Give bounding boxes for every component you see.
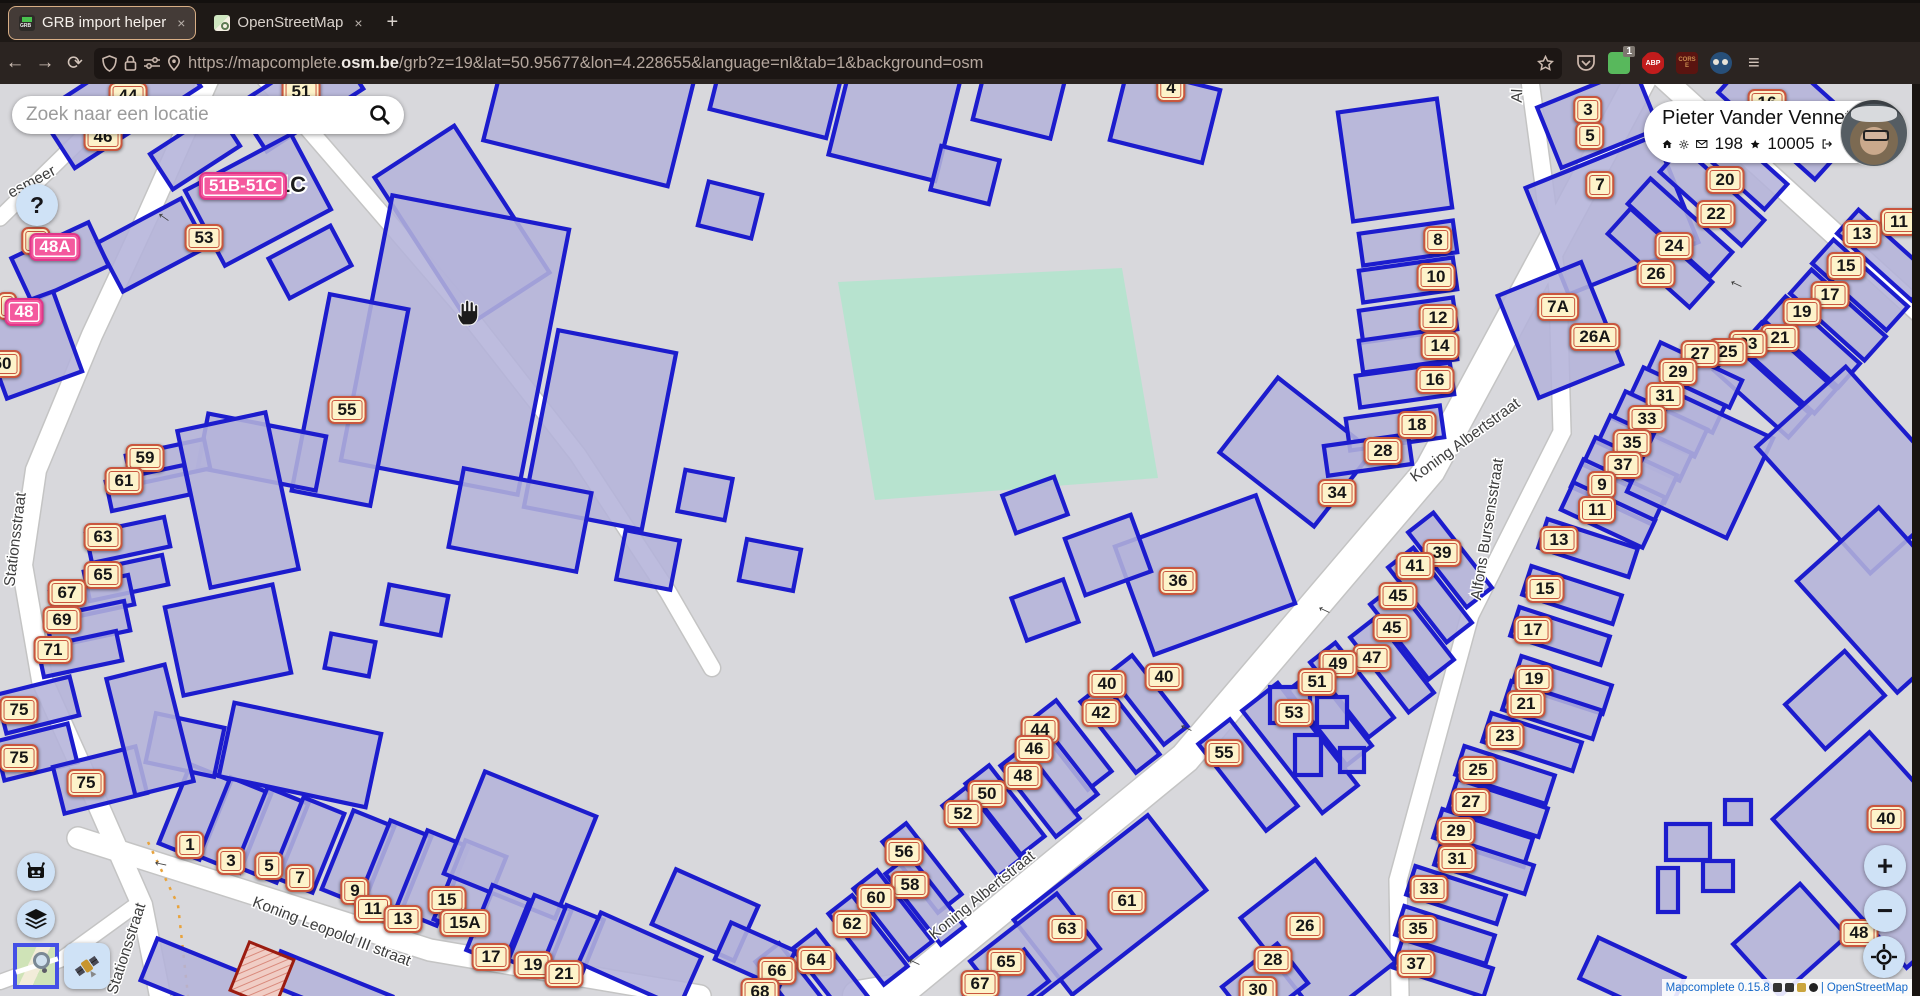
attribution-osm-link[interactable]: OpenStreetMap bbox=[1827, 982, 1908, 994]
shield-icon[interactable] bbox=[102, 55, 117, 72]
forward-button[interactable]: → bbox=[30, 52, 60, 74]
pocket-icon[interactable] bbox=[1576, 54, 1596, 73]
navigation-toolbar: ← → ⟳ https://mapcomplete.osm.be/grb?z=1… bbox=[0, 42, 1920, 84]
geolocate-button[interactable] bbox=[1863, 936, 1905, 978]
housenumber-badge[interactable]: 28 bbox=[1364, 437, 1403, 465]
user-stats: 198 10005 bbox=[1662, 134, 1832, 154]
bookmark-star-icon[interactable] bbox=[1537, 55, 1554, 72]
background-aerial-button[interactable] bbox=[64, 943, 110, 989]
housenumber-badge[interactable]: 5 bbox=[254, 852, 283, 880]
housenumber-badge[interactable]: 33 bbox=[1410, 875, 1449, 903]
housenumber-badge[interactable]: 17 bbox=[1514, 616, 1553, 644]
housenumber-badge[interactable]: 11 bbox=[1578, 496, 1616, 524]
tab-label: OpenStreetMap bbox=[237, 14, 343, 31]
tab-label: GRB import helper bbox=[42, 14, 166, 31]
housenumber-badge[interactable]: 17 bbox=[472, 943, 511, 971]
housenumber-badge[interactable]: 75 bbox=[0, 696, 38, 724]
housenumber-badge[interactable]: 25 bbox=[1459, 756, 1498, 784]
housenumber-badge[interactable]: 52 bbox=[944, 800, 983, 828]
housenumber-badge[interactable]: 46 bbox=[1015, 735, 1054, 763]
housenumber-badge[interactable]: 30 bbox=[1239, 976, 1278, 996]
housenumber-badge[interactable]: 34 bbox=[1318, 479, 1357, 507]
housenumber-badge[interactable]: 23 bbox=[1486, 722, 1525, 750]
housenumber-badges-layer: 44514641635753451B-51C48A485055596163656… bbox=[0, 84, 1920, 996]
housenumber-badge[interactable]: 21 bbox=[1507, 690, 1546, 718]
tab-close-icon[interactable]: × bbox=[354, 15, 362, 31]
housenumber-badge[interactable]: 61 bbox=[105, 467, 144, 495]
housenumber-badge[interactable]: 21 bbox=[545, 960, 584, 988]
osm-favicon bbox=[214, 15, 230, 31]
housenumber-badge[interactable]: 61 bbox=[1108, 887, 1147, 915]
housenumber-badge[interactable]: 69 bbox=[43, 606, 82, 634]
home-icon[interactable] bbox=[1662, 136, 1672, 152]
housenumber-badge[interactable]: 3 bbox=[1573, 96, 1602, 124]
housenumber-badge[interactable]: 22 bbox=[1697, 200, 1736, 228]
url-bar[interactable]: https://mapcomplete.osm.be/grb?z=19&lat=… bbox=[94, 48, 1562, 79]
housenumber-badge[interactable]: 19 bbox=[1515, 665, 1554, 693]
housenumber-badge[interactable]: 50 bbox=[0, 350, 21, 378]
back-button[interactable]: ← bbox=[0, 52, 30, 74]
attribution-app-link[interactable]: Mapcomplete 0.15.8 bbox=[1666, 982, 1770, 994]
search-icon[interactable] bbox=[368, 103, 392, 127]
avatar[interactable] bbox=[1840, 99, 1908, 167]
copyright-icon[interactable] bbox=[1809, 983, 1818, 992]
housenumber-badge[interactable]: 15 bbox=[1827, 252, 1866, 280]
permissions-icon[interactable] bbox=[144, 57, 160, 69]
hand-cursor bbox=[452, 296, 482, 328]
housenumber-badge[interactable]: 63 bbox=[84, 523, 123, 551]
housenumber-badge[interactable]: 64 bbox=[797, 946, 836, 974]
housenumber-badge[interactable]: 40 bbox=[1088, 670, 1127, 698]
housenumber-badge[interactable]: 36 bbox=[1159, 567, 1198, 595]
housenumber-badge[interactable]: 18 bbox=[1398, 411, 1437, 439]
extension-row: 1 ABP CORSE ≡ bbox=[1576, 52, 1770, 75]
housenumber-badge[interactable]: 1 bbox=[175, 831, 204, 859]
housenumber-badge[interactable]: 29 bbox=[1437, 817, 1476, 845]
housenumber-badge[interactable]: 26A bbox=[1569, 323, 1620, 351]
housenumber-badge[interactable]: 27 bbox=[1452, 788, 1491, 816]
housenumber-badge[interactable]: 14 bbox=[1421, 332, 1460, 360]
housenumber-badge[interactable]: 75 bbox=[0, 744, 38, 772]
tab-close-icon[interactable]: × bbox=[177, 15, 185, 31]
housenumber-badge[interactable]: 24 bbox=[1655, 232, 1694, 260]
housenumber-badge[interactable]: 53 bbox=[1275, 699, 1314, 727]
housenumber-badge[interactable]: 41 bbox=[1396, 552, 1435, 580]
menu-icon[interactable]: ≡ bbox=[1748, 52, 1760, 75]
housenumber-badge[interactable]: 55 bbox=[328, 396, 367, 424]
adblock-icon[interactable]: ABP bbox=[1642, 52, 1664, 74]
grb-housenumber-badge[interactable]: 48 bbox=[5, 298, 44, 326]
layers-button[interactable] bbox=[17, 900, 55, 938]
help-button[interactable]: ? bbox=[16, 184, 58, 226]
logout-icon[interactable] bbox=[1822, 136, 1832, 152]
changeset-count: 10005 bbox=[1767, 134, 1814, 154]
cors-extension-icon[interactable]: CORSE bbox=[1676, 52, 1698, 74]
messages-icon[interactable] bbox=[1696, 137, 1708, 151]
url-text[interactable]: https://mapcomplete.osm.be/grb?z=19&lat=… bbox=[188, 54, 1530, 73]
housenumber-badge[interactable]: 13 bbox=[1540, 526, 1579, 554]
housenumber-badge[interactable]: 40 bbox=[1867, 805, 1906, 833]
housenumber-badge[interactable]: 31 bbox=[1438, 845, 1477, 873]
housenumber-badge[interactable]: 47 bbox=[1353, 644, 1392, 672]
layers-icon bbox=[24, 908, 48, 930]
crosshair-icon bbox=[1871, 944, 1897, 970]
user-panel[interactable]: Pieter Vander Vennet 198 10005 bbox=[1644, 101, 1906, 163]
housenumber-badge[interactable]: 15 bbox=[1526, 575, 1565, 603]
extension-badge: 1 bbox=[1623, 46, 1635, 57]
housenumber-badge[interactable]: 3 bbox=[216, 847, 245, 875]
housenumber-badge[interactable]: 45 bbox=[1373, 614, 1412, 642]
housenumber-badge[interactable]: 5 bbox=[1575, 122, 1604, 150]
search-box[interactable] bbox=[12, 96, 404, 134]
search-input[interactable] bbox=[24, 103, 368, 127]
housenumber-badge[interactable]: 10 bbox=[1417, 263, 1456, 291]
duckduckgo-icon[interactable] bbox=[1710, 52, 1732, 74]
grb-favicon bbox=[19, 15, 35, 31]
star-mini-icon[interactable] bbox=[1797, 983, 1806, 992]
attribution-separator: | bbox=[1821, 982, 1824, 994]
housenumber-badge[interactable]: 12 bbox=[1419, 304, 1458, 332]
housenumber-badge[interactable]: 35 bbox=[1399, 915, 1438, 943]
zoom-out-button[interactable]: − bbox=[1864, 890, 1906, 932]
housenumber-badge[interactable]: 9 bbox=[1587, 471, 1616, 499]
housenumber-badge[interactable]: 45 bbox=[1379, 582, 1418, 610]
housenumber-badge[interactable]: 37 bbox=[1397, 950, 1436, 978]
import-assistant-button[interactable] bbox=[17, 853, 55, 891]
housenumber-badge[interactable]: 16 bbox=[1416, 366, 1455, 394]
housenumber-badge[interactable]: 20 bbox=[1706, 166, 1745, 194]
housenumber-badge[interactable]: 28 bbox=[1254, 946, 1293, 974]
housenumber-badge[interactable]: 65 bbox=[84, 561, 123, 589]
edit-icon[interactable] bbox=[1785, 983, 1794, 992]
zoom-in-button[interactable]: + bbox=[1864, 845, 1906, 887]
housenumber-badge[interactable]: 7 bbox=[285, 864, 314, 892]
housenumber-badge[interactable]: 40 bbox=[1145, 663, 1184, 691]
map-canvas[interactable]: 51B-51CStationsstraatStationsstraatKonin… bbox=[0, 84, 1920, 996]
housenumber-badge[interactable]: 55 bbox=[1205, 739, 1244, 767]
housenumber-badge[interactable]: 4 bbox=[1156, 84, 1185, 102]
housenumber-badge[interactable]: 13 bbox=[1843, 220, 1882, 248]
grb-housenumber-badge[interactable]: 48A bbox=[29, 233, 80, 261]
housenumber-badge[interactable]: 58 bbox=[891, 871, 930, 899]
scrollbar[interactable] bbox=[1912, 84, 1920, 996]
housenumber-badge[interactable]: 7 bbox=[1585, 171, 1614, 199]
housenumber-badge[interactable]: 48 bbox=[1004, 762, 1043, 790]
gear-icon[interactable] bbox=[1679, 136, 1689, 153]
background-osm-button[interactable] bbox=[13, 943, 59, 989]
reload-button[interactable]: ⟳ bbox=[60, 52, 90, 75]
stats-icon[interactable] bbox=[1773, 983, 1782, 992]
housenumber-badge[interactable]: 26 bbox=[1637, 260, 1676, 288]
housenumber-badge[interactable]: 51 bbox=[1298, 668, 1337, 696]
messages-count: 198 bbox=[1715, 134, 1743, 154]
housenumber-badge[interactable]: 53 bbox=[185, 224, 224, 252]
grb-housenumber-badge[interactable]: 51B-51C bbox=[199, 172, 287, 200]
housenumber-badge[interactable]: 26 bbox=[1286, 912, 1325, 940]
tab-bar: GRB import helper × OpenStreetMap × + bbox=[0, 0, 1920, 42]
housenumber-badge[interactable]: 7A bbox=[1537, 293, 1579, 321]
housenumber-badge[interactable]: 15A bbox=[439, 909, 490, 937]
housenumber-badge[interactable]: 67 bbox=[961, 970, 1000, 996]
extension-icon[interactable]: 1 bbox=[1608, 52, 1630, 74]
location-permission-icon[interactable] bbox=[167, 55, 181, 71]
housenumber-badge[interactable]: 68 bbox=[741, 978, 780, 996]
housenumber-badge[interactable]: 56 bbox=[885, 838, 924, 866]
satellite-icon bbox=[72, 951, 102, 981]
housenumber-badge[interactable]: 62 bbox=[833, 910, 872, 938]
new-tab-button[interactable]: + bbox=[387, 11, 399, 34]
user-name: Pieter Vander Vennet bbox=[1662, 107, 1832, 130]
housenumber-badge[interactable]: 60 bbox=[857, 884, 896, 912]
lock-icon[interactable] bbox=[124, 55, 137, 71]
housenumber-badge[interactable]: 71 bbox=[34, 636, 73, 664]
housenumber-badge[interactable]: 63 bbox=[1048, 915, 1087, 943]
tab-grb-import-helper[interactable]: GRB import helper × bbox=[8, 6, 196, 40]
housenumber-badge[interactable]: 8 bbox=[1423, 226, 1452, 254]
star-icon bbox=[1750, 136, 1760, 153]
housenumber-badge[interactable]: 75 bbox=[67, 769, 106, 797]
housenumber-badge[interactable]: 42 bbox=[1082, 699, 1121, 727]
browser-window: GRB import helper × OpenStreetMap × + ← … bbox=[0, 0, 1920, 996]
attribution-bar: Mapcomplete 0.15.8 | OpenStreetMap bbox=[1662, 979, 1912, 996]
housenumber-badge[interactable]: 13 bbox=[384, 905, 423, 933]
robot-icon bbox=[25, 862, 47, 882]
housenumber-badge[interactable]: 19 bbox=[1783, 298, 1822, 326]
housenumber-badge[interactable]: 67 bbox=[48, 579, 87, 607]
tab-openstreetmap[interactable]: OpenStreetMap × bbox=[204, 7, 372, 39]
